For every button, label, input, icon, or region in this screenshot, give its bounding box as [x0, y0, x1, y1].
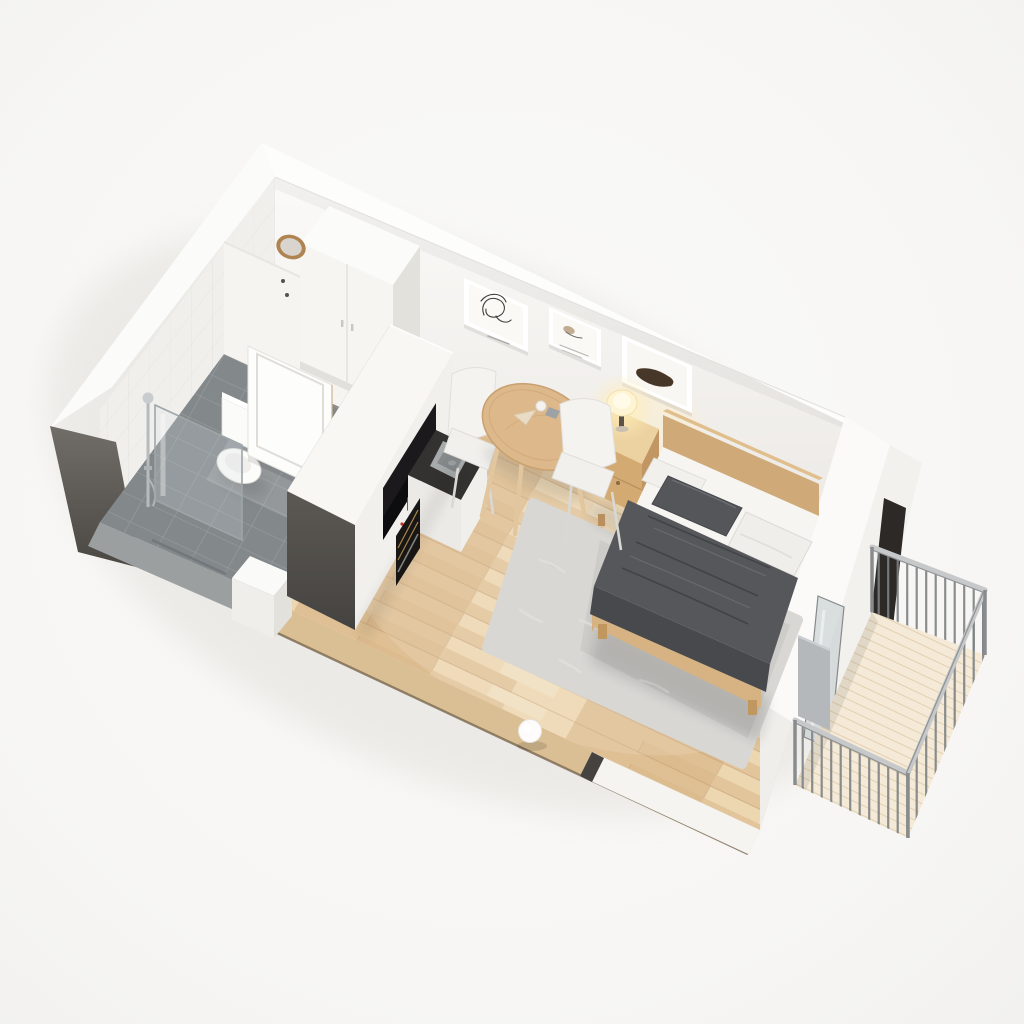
table-cup [536, 401, 546, 411]
apartment-scene [0, 0, 1024, 1024]
privacy-panel [798, 636, 830, 730]
wall-hook [281, 279, 285, 283]
wall-hook [285, 293, 289, 297]
floorplan-render [0, 0, 1024, 1024]
